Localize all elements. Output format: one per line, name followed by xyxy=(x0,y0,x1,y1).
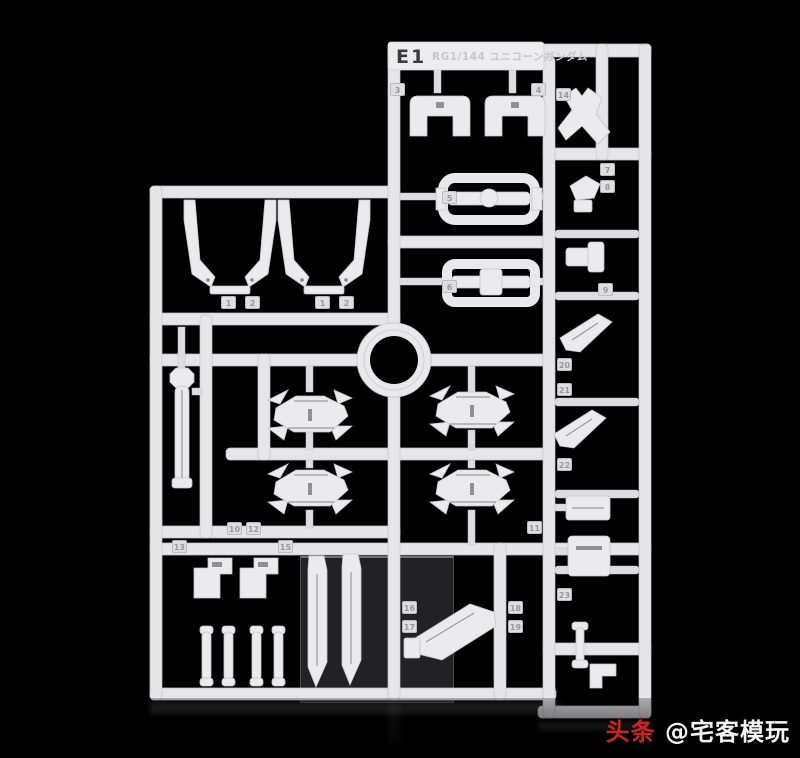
cylinder-part xyxy=(170,368,194,488)
small-part xyxy=(570,176,600,212)
clamp-part xyxy=(485,96,545,136)
pipe-part xyxy=(250,626,263,686)
small-part xyxy=(566,242,604,272)
l-part xyxy=(590,664,616,688)
clamp-part xyxy=(410,96,470,136)
frame-part xyxy=(436,178,542,220)
bracket-part xyxy=(240,558,278,598)
vfin-part xyxy=(278,200,370,294)
photo-stage: E1 RG1/144 ユニコーンガンダム 1212345678914101211… xyxy=(0,0,800,758)
armor-part xyxy=(430,464,514,514)
wing-part xyxy=(560,314,612,352)
box-part xyxy=(568,536,610,576)
frame-part xyxy=(447,264,535,302)
armor-part xyxy=(268,464,352,514)
watermark-account: @宅客模玩 xyxy=(665,718,790,746)
ring-part xyxy=(357,323,431,397)
wedge-part xyxy=(404,604,496,660)
blade-part xyxy=(308,556,327,687)
watermark: 头条 @宅客模玩 xyxy=(606,712,790,747)
vfin-part xyxy=(184,200,276,294)
armor-part xyxy=(430,386,514,436)
wing-part xyxy=(554,410,606,448)
runner-title-text: RG1/144 ユニコーンガンダム xyxy=(432,50,588,63)
sprue-runner: E1 RG1/144 ユニコーンガンダム xyxy=(0,0,800,758)
pipe-part xyxy=(200,626,213,686)
watermark-brand: 头条 xyxy=(606,718,656,746)
pipe-part xyxy=(272,626,285,686)
bracket-part xyxy=(194,558,232,598)
blade-part xyxy=(342,554,361,685)
runner-code-text: E1 xyxy=(396,46,426,68)
pipe-part xyxy=(222,626,235,686)
box-part xyxy=(566,496,610,520)
